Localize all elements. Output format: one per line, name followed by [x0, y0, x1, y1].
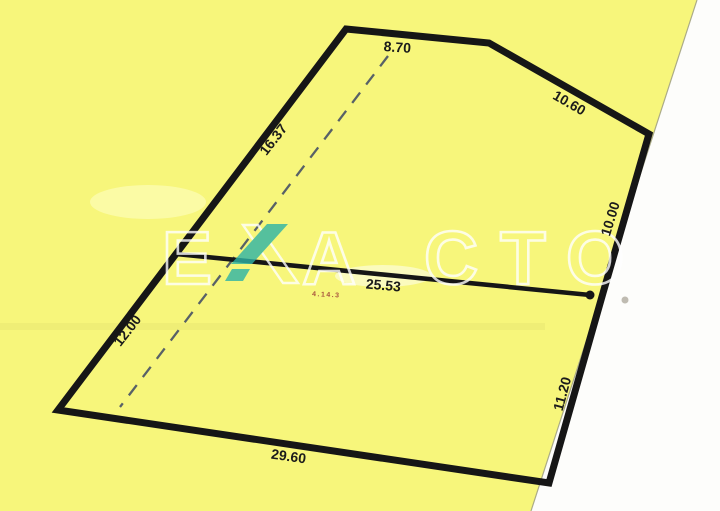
watermark-letter-o: O: [566, 216, 624, 300]
scan-highlight-spot: [90, 185, 206, 219]
dimension-label-top: 8.70: [383, 38, 412, 56]
watermark-letter-e: E: [162, 216, 212, 300]
watermark-letter-t: T: [500, 216, 546, 300]
dimension-label-middle-line: 25.53: [365, 276, 402, 295]
red-annotation: 4.14.3: [312, 291, 341, 299]
survey-plan-drawing: E A C T O 8.70 10.60 10.00 11.20 29.60 1…: [0, 0, 720, 511]
watermark-letter-c: C: [424, 216, 478, 300]
watermark-letter-a: A: [302, 216, 356, 300]
scan-shadow-band: [0, 323, 545, 330]
survey-plan-page: E A C T O 8.70 10.60 10.00 11.20 29.60 1…: [0, 0, 720, 511]
